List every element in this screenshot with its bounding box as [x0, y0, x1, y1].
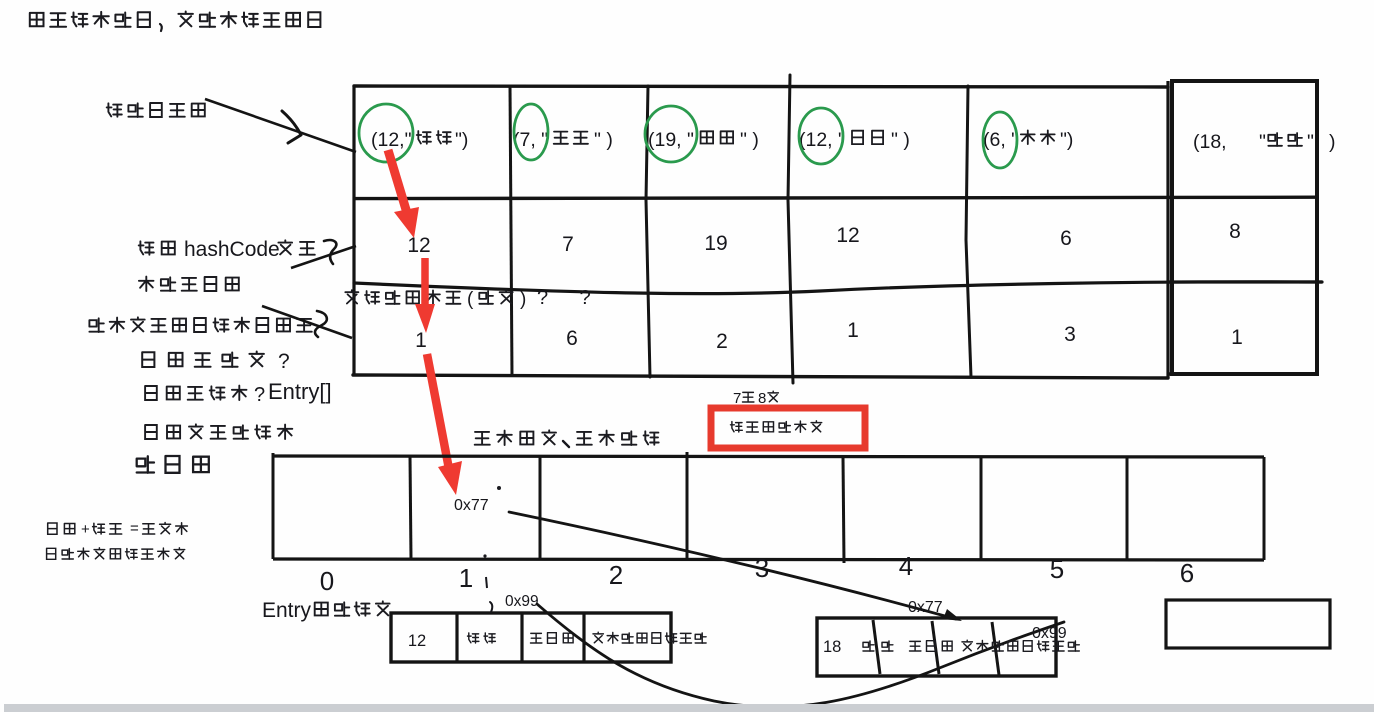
svg-text:0x99: 0x99 [1032, 625, 1067, 642]
svg-text:0x77: 0x77 [454, 497, 489, 514]
svg-text:? ?: ? ? [537, 287, 604, 309]
svg-text:6: 6 [566, 327, 578, 350]
svg-text:(12,": (12," [371, 129, 412, 151]
svg-text:4: 4 [899, 551, 913, 581]
svg-text:1: 1 [415, 329, 427, 352]
svg-text:": " [1259, 131, 1266, 153]
svg-text:?: ? [254, 384, 265, 406]
svg-text:2: 2 [609, 560, 623, 590]
svg-text:6: 6 [1180, 558, 1194, 588]
svg-text:Entry[]: Entry[] [268, 379, 332, 404]
svg-text:18: 18 [823, 638, 841, 656]
svg-text:2: 2 [716, 330, 728, 353]
svg-text:+: + [81, 521, 90, 538]
svg-text:12: 12 [407, 234, 430, 257]
svg-text:8: 8 [758, 390, 766, 407]
svg-text:(12, ": (12, " [799, 129, 845, 151]
svg-text:): ) [520, 289, 526, 310]
svg-text:7: 7 [733, 390, 741, 407]
svg-text:"): ") [455, 129, 468, 151]
svg-text:): ) [1329, 131, 1336, 153]
svg-text:1: 1 [847, 319, 859, 342]
svg-text:" ): " ) [594, 129, 613, 151]
svg-text:(19, ": (19, " [648, 129, 694, 151]
svg-text:(6, ": (6, " [983, 129, 1018, 151]
svg-text:12: 12 [408, 632, 426, 650]
svg-text:=: = [130, 520, 139, 537]
svg-text:19: 19 [704, 232, 727, 255]
svg-text:1: 1 [459, 563, 473, 593]
svg-text:6: 6 [1060, 227, 1072, 250]
svg-text:7: 7 [562, 233, 574, 256]
svg-text:?: ? [278, 350, 290, 373]
svg-text:" ): " ) [740, 129, 759, 151]
svg-text:12: 12 [836, 224, 859, 247]
svg-text:0x99: 0x99 [505, 593, 539, 610]
svg-text:(: ( [467, 289, 474, 310]
svg-text:0: 0 [320, 566, 334, 596]
svg-text:": " [1307, 131, 1314, 153]
svg-text:3: 3 [1064, 323, 1076, 346]
svg-text:(18,: (18, [1193, 131, 1227, 153]
svg-text:" ): " ) [891, 129, 910, 151]
svg-text:hashCode: hashCode [184, 238, 280, 261]
svg-text:5: 5 [1050, 554, 1064, 584]
svg-text:1: 1 [1231, 326, 1243, 349]
svg-text:8: 8 [1229, 220, 1241, 243]
svg-text:0x77: 0x77 [908, 599, 943, 616]
svg-text:Entry: Entry [262, 599, 312, 622]
svg-text:"): ") [1060, 129, 1073, 151]
